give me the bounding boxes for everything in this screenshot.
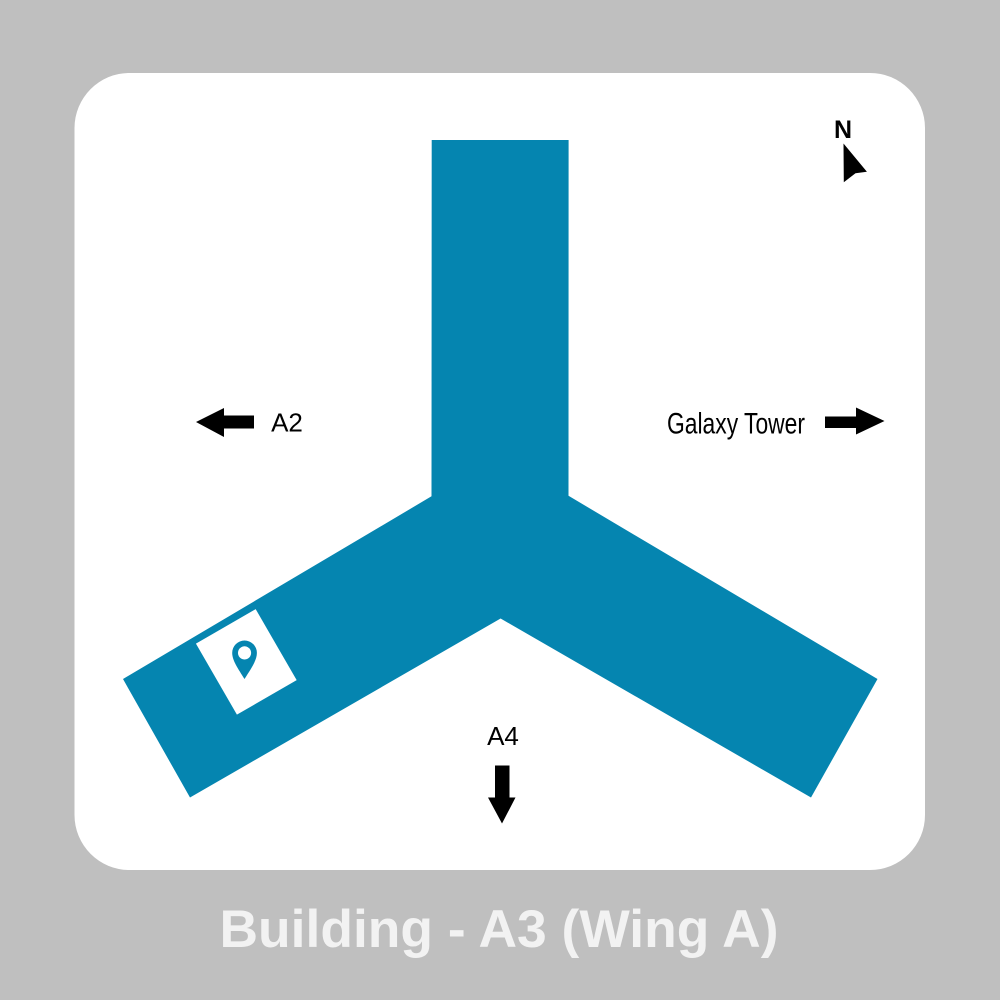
svg-text:A2: A2 [271,408,303,438]
svg-text:Building - A3 (Wing A): Building - A3 (Wing A) [220,900,779,959]
svg-text:N: N [834,116,852,144]
svg-text:A4: A4 [487,721,519,751]
svg-text:Galaxy Tower: Galaxy Tower [667,408,805,441]
